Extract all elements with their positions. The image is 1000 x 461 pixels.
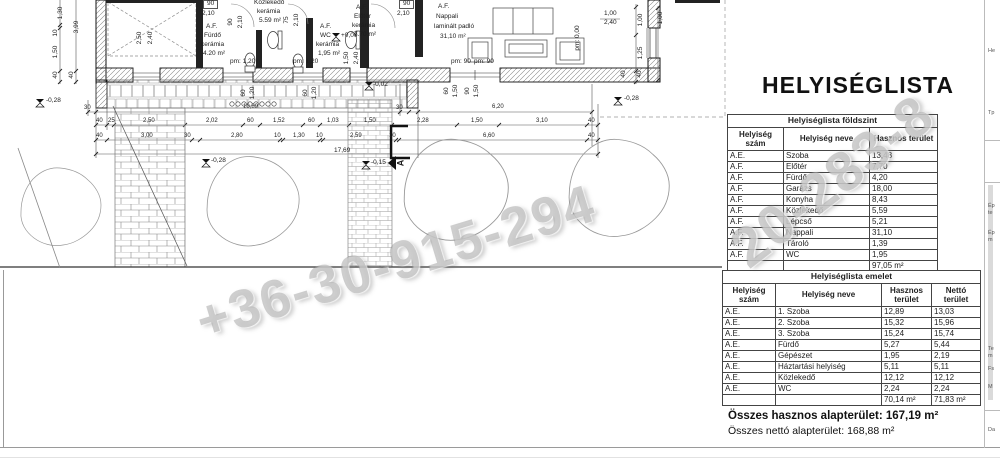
column-header: Helyiség neve bbox=[784, 128, 870, 151]
plan-label: 1,50 bbox=[344, 52, 351, 65]
upper-table-header-row: Helyiség számHelyiség neveHasznos terüle… bbox=[723, 284, 981, 307]
room-area-useful: 15,24 bbox=[882, 329, 932, 340]
plan-label: 30 bbox=[184, 133, 191, 139]
table-row: A.F. Lépcső 5,21 bbox=[728, 217, 938, 228]
sheet-bottom-edge-2 bbox=[0, 457, 1000, 458]
plan-label: Előtér bbox=[354, 14, 371, 21]
room-area-net: 2,19 bbox=[932, 351, 981, 362]
fragment-text: m bbox=[988, 353, 993, 359]
table-row: A.E. Szoba 13,48 bbox=[728, 151, 938, 162]
plan-label: 40 bbox=[53, 71, 60, 78]
room-number: A.E. bbox=[723, 351, 776, 362]
plan-label: 40 bbox=[69, 71, 76, 78]
plan-label: 10 bbox=[53, 29, 60, 36]
plan-label: -0,28 bbox=[211, 158, 226, 165]
table-row: A.E. 1. Szoba 12,89 13,03 bbox=[723, 307, 981, 318]
room-area: 18,00 bbox=[870, 184, 938, 195]
room-area-net: 5,11 bbox=[932, 362, 981, 373]
plan-label: A.F. bbox=[206, 24, 217, 31]
fragment-text: Tp bbox=[988, 110, 994, 116]
room-name: WC bbox=[776, 384, 882, 395]
room-name: 2. Szoba bbox=[776, 318, 882, 329]
table-row: A.E. WC 2,24 2,24 bbox=[723, 384, 981, 395]
room-number: A.E. bbox=[723, 373, 776, 384]
room-area-useful: 12,89 bbox=[882, 307, 932, 318]
plan-label: 10 bbox=[316, 133, 323, 139]
room-number: A.F. bbox=[728, 195, 784, 206]
plan-label: 2,10 bbox=[397, 11, 410, 18]
sheet-bottom-edge bbox=[0, 447, 1000, 448]
plan-label: +0,00 bbox=[341, 33, 357, 40]
plan-label: 40 bbox=[588, 118, 595, 124]
room-name: Közlekedő bbox=[776, 373, 882, 384]
plan-label: 10 bbox=[274, 133, 281, 139]
room-number: A.F. bbox=[728, 173, 784, 184]
table-total-row: 70,14 m² 71,83 m² bbox=[723, 395, 981, 406]
fragment-text: m bbox=[988, 237, 993, 243]
plan-label: 90 bbox=[399, 0, 414, 9]
room-area-net: 12,12 bbox=[932, 373, 981, 384]
fragment-text: Ép bbox=[988, 203, 995, 209]
room-number: A.E. bbox=[723, 362, 776, 373]
room-area-useful: 5,11 bbox=[882, 362, 932, 373]
column-header: Hasznos terület bbox=[882, 284, 932, 307]
plan-label: Fürdő bbox=[204, 33, 221, 40]
plan-label: 2,10 bbox=[294, 14, 301, 27]
table-row: A.E. 3. Szoba 15,24 15,74 bbox=[723, 329, 981, 340]
room-number: A.E. bbox=[723, 384, 776, 395]
fragment-line bbox=[985, 410, 1000, 411]
fragment-text: Te bbox=[988, 346, 994, 352]
room-number: A.E. bbox=[723, 340, 776, 351]
plan-label: 30 bbox=[84, 105, 91, 111]
ground-table-title: Helyiséglista földszint bbox=[728, 115, 938, 128]
page-title: HELYISÉGLISTA bbox=[762, 72, 954, 99]
room-area: 5,21 bbox=[870, 217, 938, 228]
fragment-text: Fs bbox=[988, 366, 994, 372]
plan-label: pm: 1,20 bbox=[293, 59, 318, 66]
plan-label: 1,50 bbox=[364, 118, 376, 124]
room-name: Közlekedő bbox=[784, 206, 870, 217]
fragment-text: He bbox=[988, 48, 995, 54]
upper-floor-table: Helyiséglista emelet Helyiség számHelyis… bbox=[722, 270, 981, 406]
plan-label: -0,28 bbox=[624, 96, 639, 103]
ground-table-header-row: Helyiség számHelyiség neveHasznos terüle… bbox=[728, 128, 938, 151]
room-name: Lépcső bbox=[784, 217, 870, 228]
plan-label: 25 bbox=[108, 118, 115, 124]
plan-label: 1,30 bbox=[58, 7, 65, 20]
room-name: Tároló bbox=[784, 239, 870, 250]
floor-plan: A.F.Fürdőkerámia4.20 m²Közlekedőkerámia5… bbox=[0, 0, 730, 270]
room-name: Szoba bbox=[784, 151, 870, 162]
room-number: A.E. bbox=[723, 329, 776, 340]
plan-label: A.F. bbox=[356, 5, 367, 12]
column-header: Nettó terület bbox=[932, 284, 981, 307]
plan-label: 1,50 bbox=[453, 85, 460, 98]
room-area-useful: 12,12 bbox=[882, 373, 932, 384]
plan-label: kerámia bbox=[201, 42, 224, 49]
plan-label: 2,80 bbox=[231, 133, 243, 139]
room-name: Fürdő bbox=[784, 173, 870, 184]
room-number: A.F. bbox=[728, 184, 784, 195]
masonry-pier bbox=[113, 106, 187, 267]
plan-label: 40 bbox=[621, 70, 628, 77]
room-name: WC bbox=[784, 250, 870, 261]
plan-label: 40 bbox=[637, 70, 644, 77]
room-area: 4,20 bbox=[870, 173, 938, 184]
room-number: A.E. bbox=[723, 318, 776, 329]
fragment-text: M bbox=[988, 384, 993, 390]
plan-label: 1,95 m² bbox=[318, 51, 340, 58]
plan-label: 10,89 bbox=[243, 104, 258, 110]
plan-label: 31,10 m² bbox=[440, 34, 466, 41]
upper-total-net: 71,83 m² bbox=[932, 395, 981, 406]
fragment-line bbox=[985, 182, 1000, 183]
plan-label: 60 bbox=[241, 89, 248, 96]
column-header: Helyiség szám bbox=[723, 284, 776, 307]
plan-label: WC bbox=[320, 33, 331, 40]
room-name: Fürdő bbox=[776, 340, 882, 351]
plan-label: A.F. bbox=[320, 24, 331, 31]
plan-label: 3,99 bbox=[74, 21, 81, 34]
plan-label: 2,50 bbox=[137, 32, 144, 45]
plan-label: 60 bbox=[303, 89, 310, 96]
plan-label: 1,25 bbox=[638, 47, 645, 60]
garage-cross bbox=[108, 2, 196, 56]
plan-label: pm: 90 bbox=[451, 59, 471, 66]
room-number: A.F. bbox=[728, 250, 784, 261]
plan-label: kerámia bbox=[257, 9, 280, 16]
table-row: A.E. Gépészet 1,95 2,19 bbox=[723, 351, 981, 362]
plan-label: A bbox=[397, 160, 406, 167]
room-area-useful: 1,95 bbox=[882, 351, 932, 362]
plan-label: 75 bbox=[284, 16, 291, 23]
table-row: A.F. Tároló 1,39 bbox=[728, 239, 938, 250]
plan-label: 2,40 bbox=[604, 20, 617, 27]
plan-label: Nappali bbox=[436, 14, 458, 21]
plan-label: 6,20 bbox=[492, 104, 504, 110]
plan-label: 1,00 bbox=[638, 14, 645, 27]
masonry-pier-2 bbox=[348, 100, 410, 267]
plan-label: 2,40 bbox=[148, 32, 155, 45]
room-area: 7,70 bbox=[870, 162, 938, 173]
column-header: Helyiség szám bbox=[728, 128, 784, 151]
table-row: A.F. Fürdő 4,20 bbox=[728, 173, 938, 184]
room-name: Garázs bbox=[784, 184, 870, 195]
table-row: A.E. Közlekedő 12,12 12,12 bbox=[723, 373, 981, 384]
room-area-useful: 5,27 bbox=[882, 340, 932, 351]
room-name: Előtér bbox=[784, 162, 870, 173]
plan-label: 1,30 bbox=[293, 133, 305, 139]
room-area: 1,95 bbox=[870, 250, 938, 261]
plan-label: 2,02 bbox=[206, 118, 218, 124]
plan-label: 17,69 bbox=[334, 148, 350, 155]
plan-label: 90 bbox=[228, 18, 235, 25]
plan-label: 10 bbox=[389, 133, 396, 139]
plan-label: pm: 0,00 bbox=[575, 25, 582, 50]
plan-label: 90 bbox=[203, 0, 218, 9]
adjacent-sheet-fragment: HeTpÉpteÉpmTemFsMDa bbox=[985, 0, 1000, 448]
room-area-net: 5,44 bbox=[932, 340, 981, 351]
table-row: A.F. Garázs 18,00 bbox=[728, 184, 938, 195]
table-row: A.F. Közlekedő 5,59 bbox=[728, 206, 938, 217]
ground-floor-table: Helyiséglista földszint Helyiség számHel… bbox=[727, 114, 938, 272]
room-area-useful: 2,24 bbox=[882, 384, 932, 395]
furniture bbox=[468, 8, 584, 64]
plan-label: 1,50 bbox=[53, 46, 60, 59]
plan-label: 1,00 bbox=[604, 11, 617, 18]
plan-label: 2,28 bbox=[417, 118, 429, 124]
room-number: A.F. bbox=[728, 228, 784, 239]
room-area: 8,43 bbox=[870, 195, 938, 206]
plan-label: 2,40 bbox=[354, 52, 361, 65]
plan-label: 2,59 bbox=[350, 133, 362, 139]
plan-label: 3,00 bbox=[141, 133, 153, 139]
plan-label: 2,50 bbox=[143, 118, 155, 124]
room-number: A.F. bbox=[728, 206, 784, 217]
table-row: A.E. 2. Szoba 15,32 15,96 bbox=[723, 318, 981, 329]
plan-label: 2,10 bbox=[238, 16, 245, 29]
fragment-text: Ép bbox=[988, 230, 995, 236]
plan-label: 90 bbox=[465, 87, 472, 94]
plan-label: 40 bbox=[588, 133, 595, 139]
total-useful-area: Összes hasznos alapterület: 167,19 m² bbox=[728, 410, 938, 422]
table-row: A.E. Háztartási helyiség 5,11 5,11 bbox=[723, 362, 981, 373]
room-name: Nappali bbox=[784, 228, 870, 239]
floor-plan-drawing bbox=[0, 0, 730, 270]
room-area-net: 15,74 bbox=[932, 329, 981, 340]
room-area-net: 15,96 bbox=[932, 318, 981, 329]
plan-label: 60 bbox=[308, 118, 315, 124]
upper-total-useful: 70,14 m² bbox=[882, 395, 932, 406]
plan-label: 40 bbox=[96, 118, 103, 124]
plan-label: pm: 1,20 bbox=[230, 59, 255, 66]
column-header: Hasznos terület bbox=[870, 128, 938, 151]
table-row: A.F. Nappali 31,10 bbox=[728, 228, 938, 239]
fragment-text: Da bbox=[988, 427, 995, 433]
plan-label: pm: 90 bbox=[474, 59, 494, 66]
room-area: 5,59 bbox=[870, 206, 938, 217]
plan-label: 1,50 bbox=[474, 85, 481, 98]
room-area: 1,39 bbox=[870, 239, 938, 250]
plan-label: A.F. bbox=[438, 4, 449, 11]
column-header: Helyiség neve bbox=[776, 284, 882, 307]
plan-label: 30 bbox=[396, 105, 403, 111]
plan-label: kerámia bbox=[316, 42, 339, 49]
room-name: 3. Szoba bbox=[776, 329, 882, 340]
plan-label: 1,50 bbox=[471, 118, 483, 124]
room-number: A.F. bbox=[728, 239, 784, 250]
plan-label: kerámia bbox=[352, 23, 375, 30]
plan-label: -0,28 bbox=[46, 98, 61, 105]
fragment-text: te bbox=[988, 210, 993, 216]
room-number: A.E. bbox=[728, 151, 784, 162]
room-area: 31,10 bbox=[870, 228, 938, 239]
room-number: A.E. bbox=[723, 307, 776, 318]
plan-label: 60 bbox=[247, 118, 254, 124]
plan-label: -0,02 bbox=[373, 82, 388, 89]
upper-table-title: Helyiséglista emelet bbox=[723, 271, 981, 284]
plan-label: 1,00 bbox=[658, 12, 665, 25]
table-row: A.F. Konyha 8,43 bbox=[728, 195, 938, 206]
plan-label: 6,60 bbox=[483, 133, 495, 139]
plan-label: 40 bbox=[96, 133, 103, 139]
fragment-line bbox=[985, 140, 1000, 141]
room-area-net: 13,03 bbox=[932, 307, 981, 318]
plan-label: 1,03 bbox=[327, 118, 339, 124]
room-name: 1. Szoba bbox=[776, 307, 882, 318]
room-area-net: 2,24 bbox=[932, 384, 981, 395]
plan-label: 1,20 bbox=[250, 87, 257, 100]
plan-label: 3,10 bbox=[536, 118, 548, 124]
room-area-useful: 15,32 bbox=[882, 318, 932, 329]
sheet-left-edge bbox=[3, 270, 4, 448]
plan-label: 5.59 m² bbox=[259, 18, 281, 25]
table-row: A.E. Fürdő 5,27 5,44 bbox=[723, 340, 981, 351]
room-area: 13,48 bbox=[870, 151, 938, 162]
room-number: A.F. bbox=[728, 162, 784, 173]
total-net-area: Összes nettó alapterület: 168,88 m² bbox=[728, 425, 894, 437]
plan-label: -0,15 bbox=[371, 160, 386, 167]
plan-label: laminált padló bbox=[434, 24, 474, 31]
room-name: Konyha bbox=[784, 195, 870, 206]
plan-label: 4.20 m² bbox=[203, 51, 225, 58]
room-name: Háztartási helyiség bbox=[776, 362, 882, 373]
plan-label: 1,20 bbox=[312, 87, 319, 100]
room-name: Gépészet bbox=[776, 351, 882, 362]
plan-label: Közlekedő bbox=[254, 0, 284, 7]
room-number: A.F. bbox=[728, 217, 784, 228]
plan-label: 60 bbox=[444, 87, 451, 94]
table-row: A.F. WC 1,95 bbox=[728, 250, 938, 261]
table-row: A.F. Előtér 7,70 bbox=[728, 162, 938, 173]
plan-label: 2,10 bbox=[202, 11, 215, 18]
drawing-sheet: A.F.Fürdőkerámia4.20 m²Közlekedőkerámia5… bbox=[0, 0, 1000, 461]
plan-label: 1,52 bbox=[273, 118, 285, 124]
